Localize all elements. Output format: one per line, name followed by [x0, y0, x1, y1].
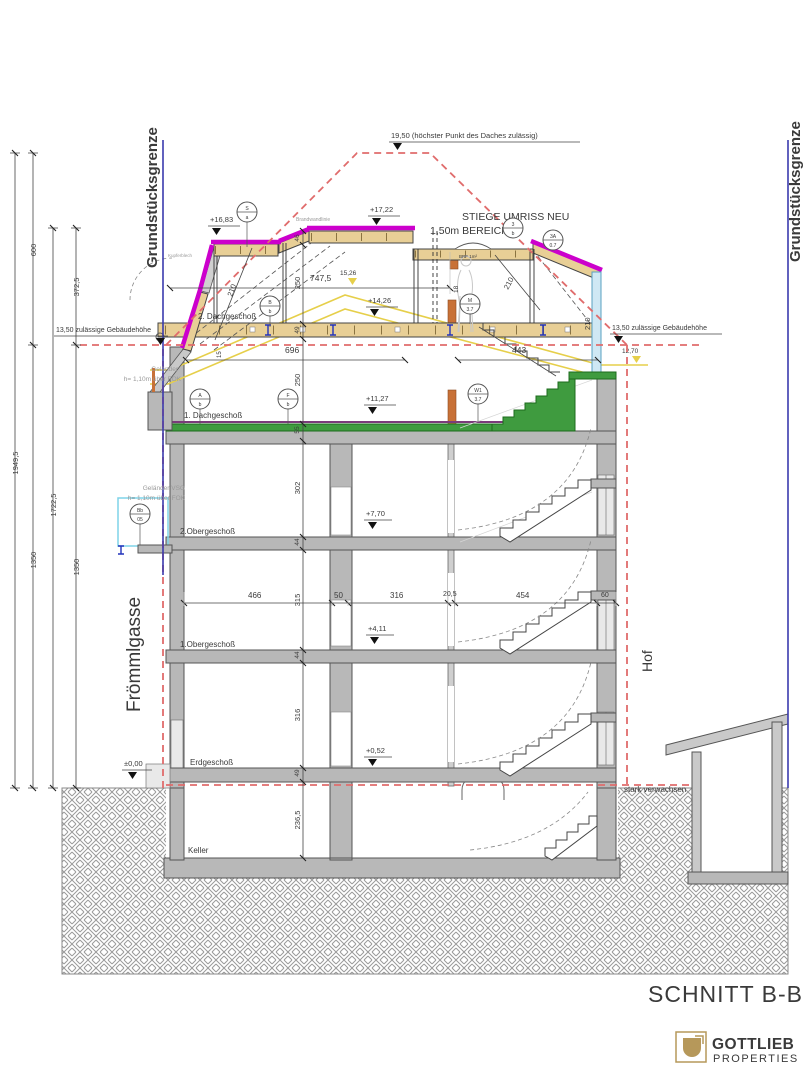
- dim-372-5: 372,5: [72, 278, 81, 297]
- stair-run: [500, 480, 591, 542]
- floor-label-og1: 1.Obergeschoß: [180, 640, 235, 649]
- dg1-floor-slab: [166, 431, 616, 444]
- svg-text:0.7: 0.7: [550, 243, 557, 249]
- dim-250: 250: [293, 374, 302, 387]
- dim-49: 49: [294, 769, 301, 777]
- logo-name: GOTTLIEB: [712, 1036, 794, 1053]
- existing-level-label: 12,70: [622, 348, 639, 355]
- yard-label: Hof: [639, 650, 655, 672]
- green-stair: [492, 375, 575, 431]
- svg-text:a: a: [246, 215, 249, 221]
- dim-1350: 1350: [29, 552, 38, 569]
- svg-text:Bb: Bb: [137, 508, 143, 514]
- dim-55: 55: [294, 426, 301, 434]
- bubble: M3.7: [460, 294, 480, 324]
- og1-floor-slab: [166, 650, 616, 663]
- floor-label-dg1: 1. Dachgeschoß: [184, 411, 242, 420]
- svg-text:M: M: [468, 298, 472, 304]
- svg-text:b: b: [269, 309, 272, 315]
- floor-label-og2: 2.Obergeschoß: [180, 527, 235, 536]
- og2-floor-slab: [166, 537, 616, 550]
- svg-text:3A: 3A: [550, 234, 557, 240]
- property-line-label-right: Grundstücksgrenze: [787, 121, 804, 262]
- shed-post: [692, 752, 701, 874]
- note-gelaender1-line2: h= 1,10m über FOK: [124, 376, 182, 383]
- glass-facade: [592, 272, 601, 372]
- level-7-70: +7,70: [366, 509, 385, 518]
- dim-236-5: 236,5: [293, 811, 302, 830]
- level-max-left: 13,50 zulässige Gebäudehöhe: [56, 327, 151, 334]
- existing-level-label: 15,26: [340, 270, 357, 277]
- dim-44: 44: [294, 651, 301, 659]
- dimension-chain-left: 1949,5 600 1350 1722,5 372,5 1350: [10, 150, 81, 791]
- shed-slab: [688, 872, 788, 884]
- bubble: W13.7: [468, 384, 488, 422]
- dim-1722-5: 1722,5: [49, 494, 58, 517]
- level-4-11: +4,11: [368, 624, 386, 633]
- title-block: SCHNITT B-B GOTTLIEB PROPERTIES: [648, 981, 803, 1065]
- level-0-52: +0,52: [366, 746, 385, 755]
- note-gelaender2-line2: h= 1,10m über FOK: [128, 495, 186, 502]
- dim-210: 210: [225, 283, 238, 298]
- bubble: Fb: [278, 389, 298, 424]
- logo-subtitle: PROPERTIES: [713, 1053, 799, 1065]
- svg-text:b: b: [512, 231, 515, 237]
- terrace-band-left: [214, 244, 278, 256]
- svg-text:W1: W1: [474, 388, 482, 394]
- balcony-slab: [138, 545, 172, 553]
- property-line-label-left: Grundstücksgrenze: [144, 127, 161, 268]
- dim-60: 60: [601, 592, 609, 599]
- parapet: [148, 392, 172, 430]
- dim-443: 443: [512, 345, 526, 355]
- note-bereich: 1,50m BEREICH: [430, 225, 509, 237]
- dim-20-5: 20,5: [443, 591, 457, 598]
- bubble: 3A0.7: [543, 230, 563, 250]
- dim-1949-5: 1949,5: [11, 452, 20, 475]
- level-max-right: 13,50 zulässige Gebäudehöhe: [612, 325, 707, 332]
- dim-747-5: 747,5: [310, 273, 332, 283]
- floor-label-eg: Erdgeschoß: [190, 758, 233, 767]
- stair-run: [500, 592, 591, 654]
- company-logo: GOTTLIEB PROPERTIES: [676, 1032, 799, 1065]
- bubble: 3b: [503, 218, 523, 238]
- timber-post: [448, 390, 456, 426]
- dormer-arc: [455, 243, 491, 249]
- green-landing: [569, 372, 616, 379]
- dim-18: 18: [453, 285, 460, 293]
- dim-49: 49: [294, 326, 301, 334]
- dim-50: 50: [334, 591, 343, 600]
- svg-text:05: 05: [137, 517, 143, 523]
- dim-600: 600: [29, 244, 38, 257]
- level-roof-max: 19,50 (höchster Punkt des Daches zulässi…: [391, 131, 538, 140]
- svg-text:b: b: [199, 402, 202, 408]
- level-11-27: +11,27: [366, 394, 389, 403]
- svg-text:3.7: 3.7: [467, 307, 474, 313]
- svg-text:3.7: 3.7: [475, 397, 482, 403]
- section-drawing: 15,26 12,70: [0, 0, 810, 1080]
- svg-text:3: 3: [512, 222, 515, 228]
- note-gelaender1-line1: Geländer: [151, 366, 179, 373]
- dim-1350: 1350: [72, 559, 81, 576]
- floor-label-keller: Keller: [188, 846, 209, 855]
- dim-454: 454: [516, 591, 530, 600]
- dim-316: 316: [390, 591, 404, 600]
- dim-15: 15: [217, 351, 223, 358]
- dim-316: 316: [293, 709, 302, 722]
- dim-315: 315: [293, 594, 302, 607]
- dim-466: 466: [248, 591, 262, 600]
- stair-run: [500, 714, 591, 776]
- dim-44: 44: [294, 538, 301, 546]
- level-16-83: +16,83: [210, 215, 233, 224]
- dim-302: 302: [293, 482, 302, 495]
- note-gelaender2-line1: Geländer VSG: [143, 485, 185, 492]
- bubble: Bb05: [130, 504, 150, 545]
- floor-label-dg2: 2. Dachgeschoß: [198, 312, 256, 321]
- note-brandwand: Brandwandlinie: [296, 217, 330, 223]
- dg2-floor-band: [158, 323, 600, 337]
- level-14-26: +14,26: [368, 296, 391, 305]
- svg-text:b: b: [287, 402, 290, 408]
- plan-sheet: 15,26 12,70: [0, 0, 810, 1080]
- note-kupfer: Kupferblech: [168, 253, 193, 258]
- level-17-22: +17,22: [370, 205, 393, 214]
- note-verwachsen: stark verwachsen: [624, 785, 686, 794]
- eg-floor-slab: [166, 768, 616, 782]
- section-title: SCHNITT B-B: [648, 981, 803, 1007]
- note-brf: BRF 1m²: [459, 254, 478, 259]
- dim-250: 250: [293, 277, 302, 290]
- shed-post: [772, 722, 782, 874]
- dim-696: 696: [285, 345, 299, 355]
- street-label: Frömmlgasse: [124, 597, 145, 712]
- floor-slabs: [166, 422, 616, 782]
- foundation-slab: [164, 858, 620, 878]
- bubble: Bb: [260, 296, 280, 327]
- logo-glyph: [683, 1038, 701, 1057]
- level-0-00: ±0,00: [124, 759, 143, 768]
- dim-210: 210: [583, 317, 592, 330]
- svg-text:F: F: [286, 393, 289, 399]
- dim-46: 46: [294, 234, 301, 242]
